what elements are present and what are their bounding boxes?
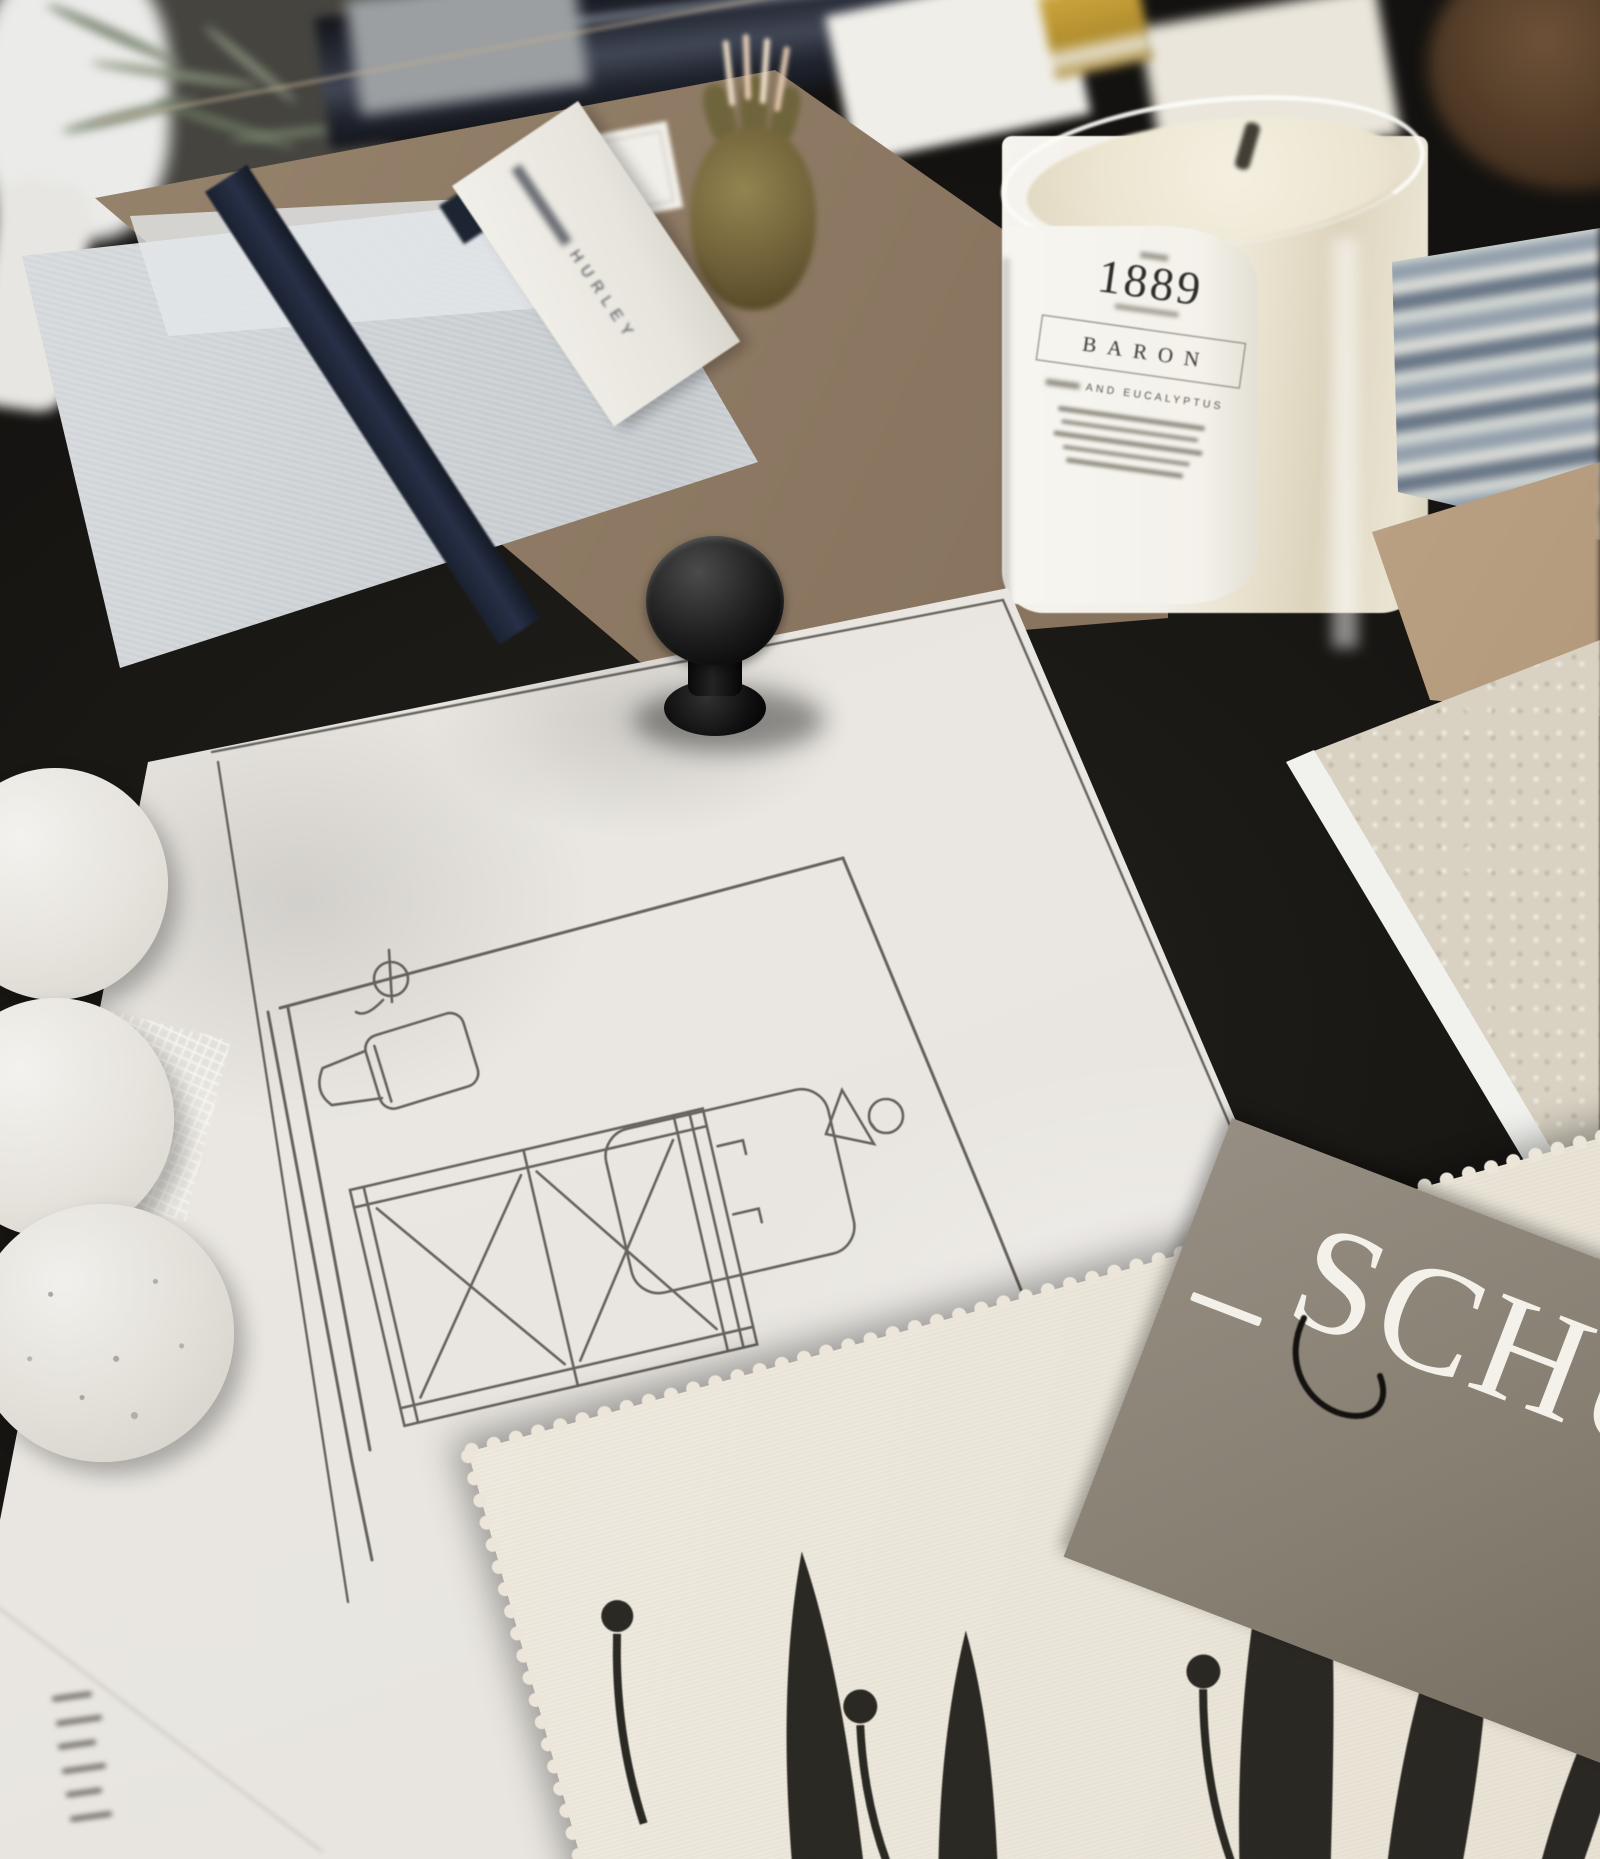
brand-tag-dash: [1190, 1292, 1262, 1327]
plan-lamp: [826, 1090, 903, 1144]
plan-toilet: [310, 1010, 482, 1128]
thread: [1268, 1300, 1428, 1460]
cabinet-knob: [646, 536, 784, 666]
photo-stage: HURLEY 1889 BARON AND EUCALYPTUS: [0, 0, 1600, 1859]
plan-rug: [600, 1084, 860, 1299]
